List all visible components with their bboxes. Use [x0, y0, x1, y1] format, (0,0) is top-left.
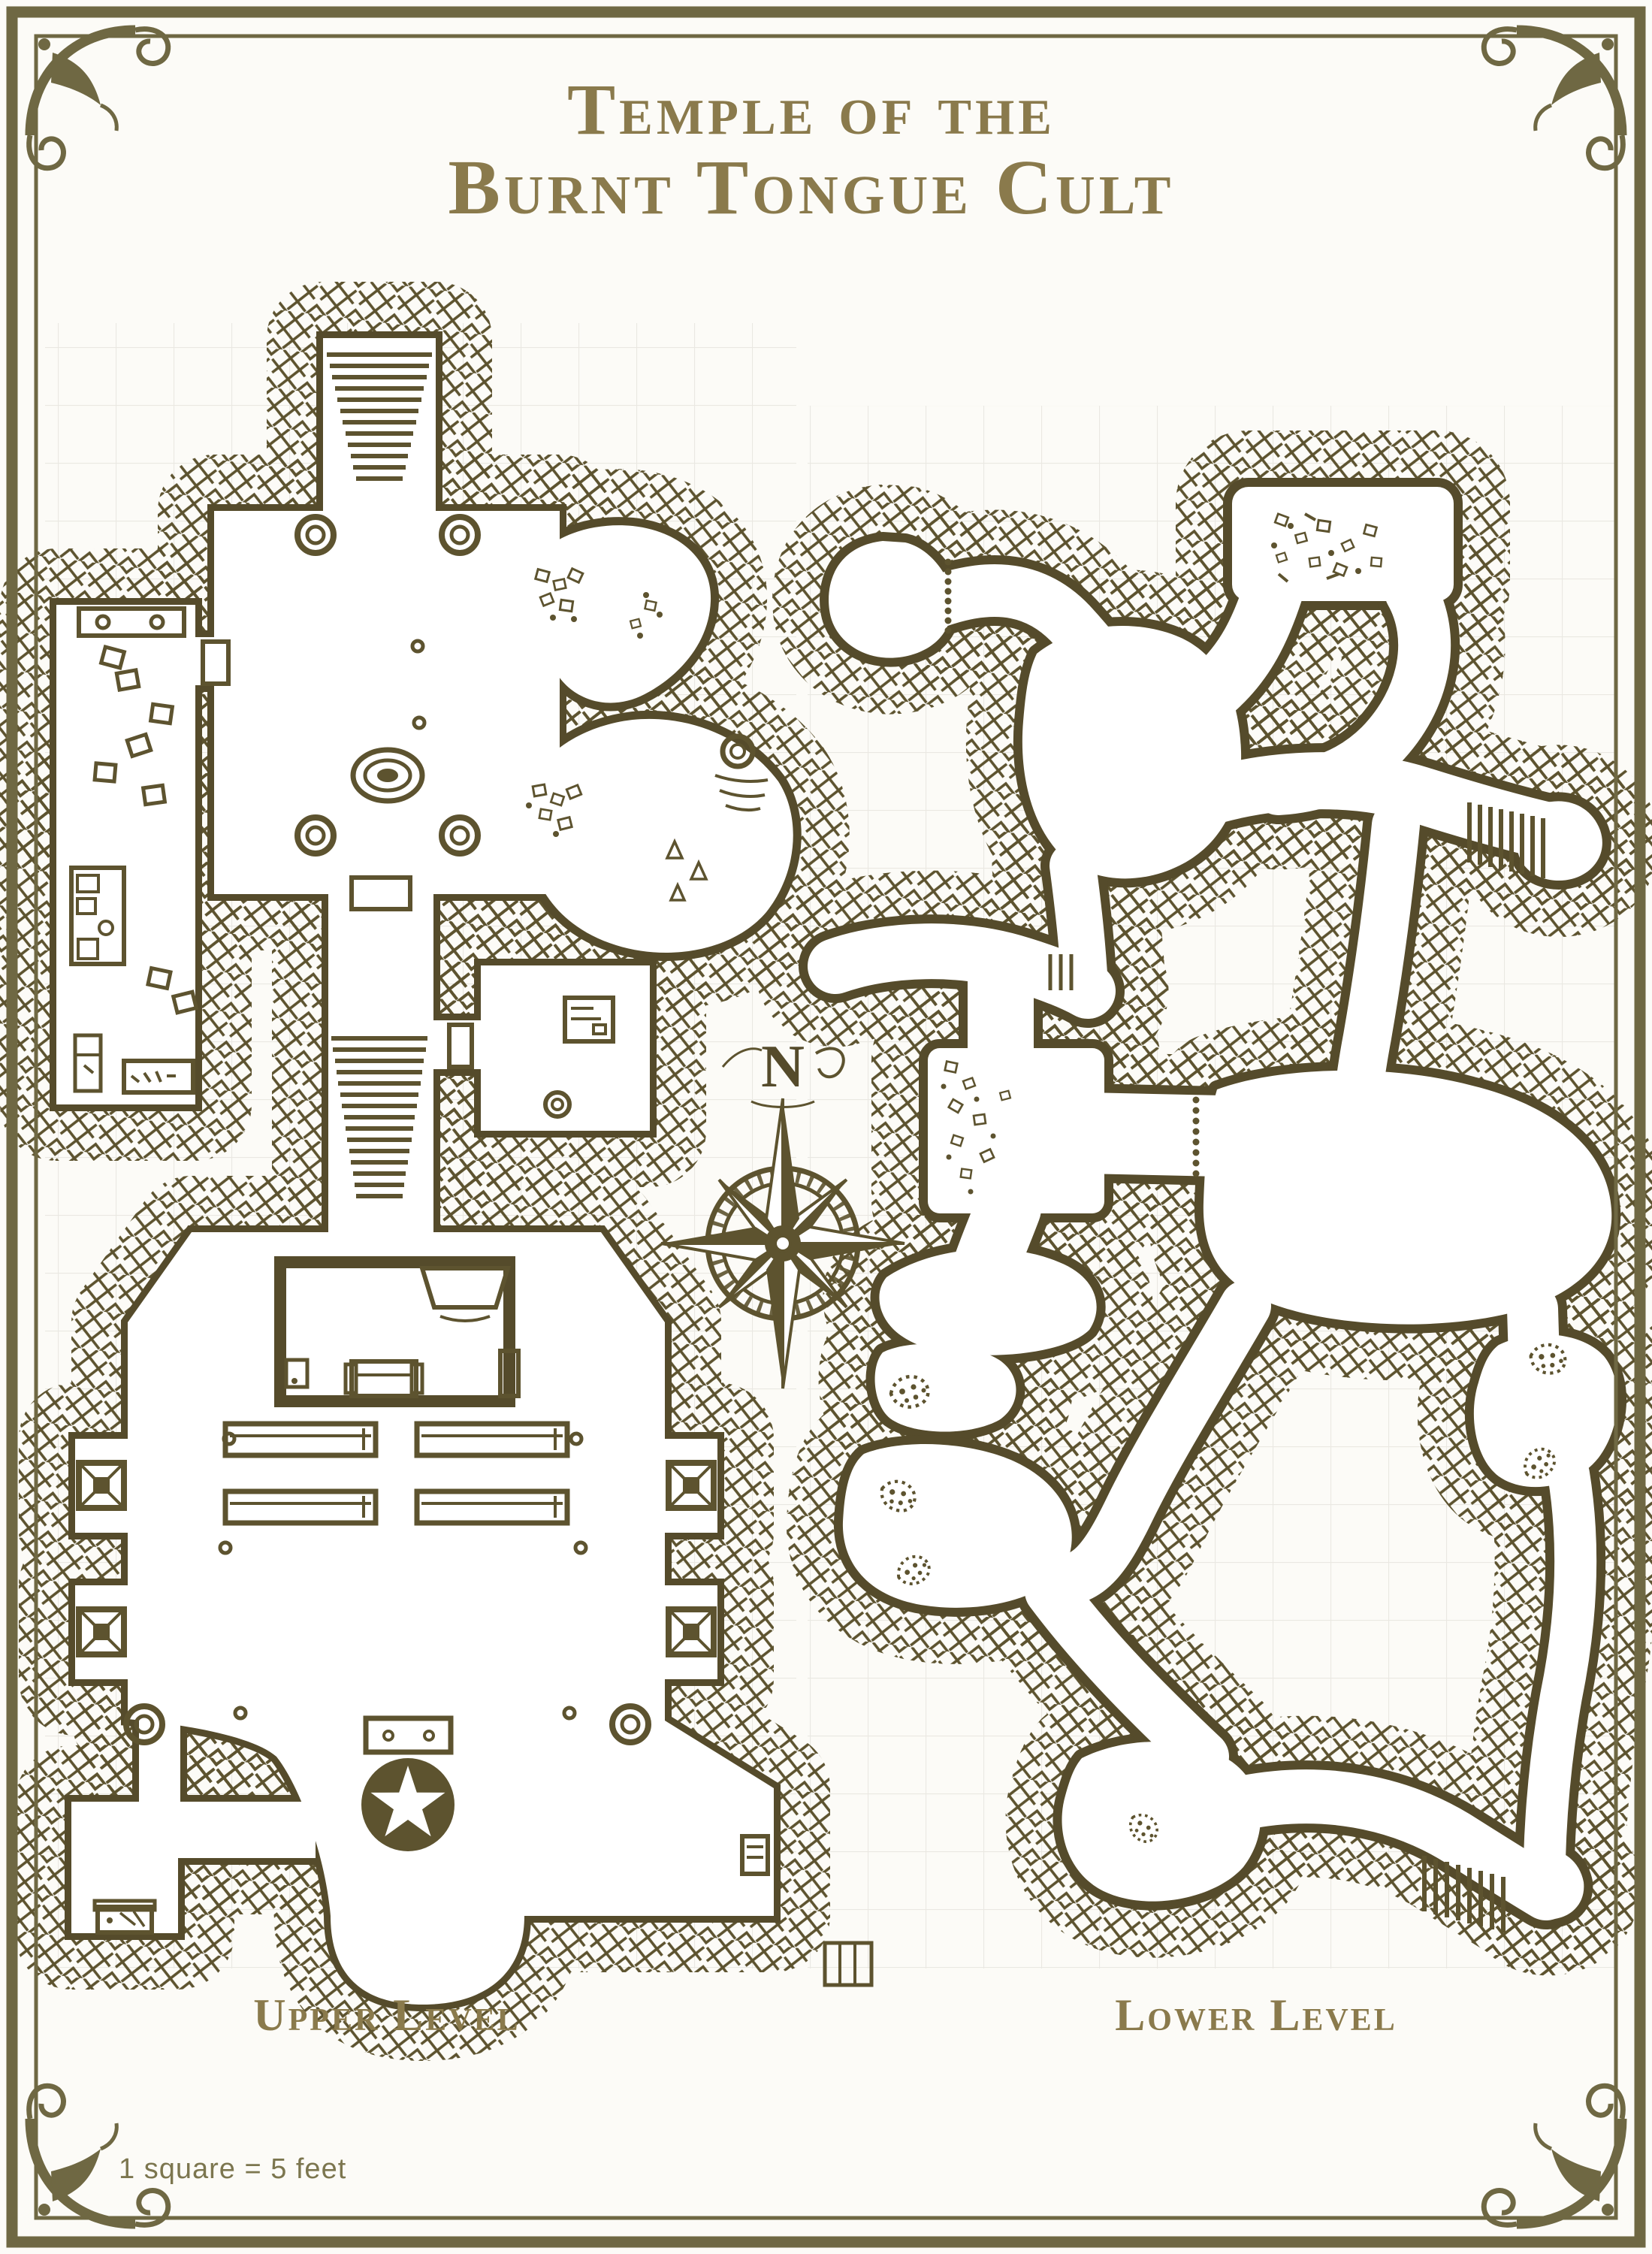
lower-level-label: Lower Level — [1016, 1990, 1496, 2041]
upper-level-label: Upper Level — [146, 1990, 627, 2041]
map-title-line1: Temple of the — [0, 72, 1623, 147]
map-title-line2: Burnt Tongue Cult — [0, 147, 1623, 228]
star-circle-sigil — [361, 1758, 455, 1851]
compass-north-letter: N — [761, 1034, 805, 1100]
map-sheet: N Temple of the Burnt Tongue Cult Upper … — [0, 0, 1652, 2254]
map-canvas: N — [0, 0, 1652, 2254]
scale-note: 1 square = 5 feet — [119, 2153, 346, 2186]
map-title: Temple of the Burnt Tongue Cult — [0, 72, 1623, 228]
